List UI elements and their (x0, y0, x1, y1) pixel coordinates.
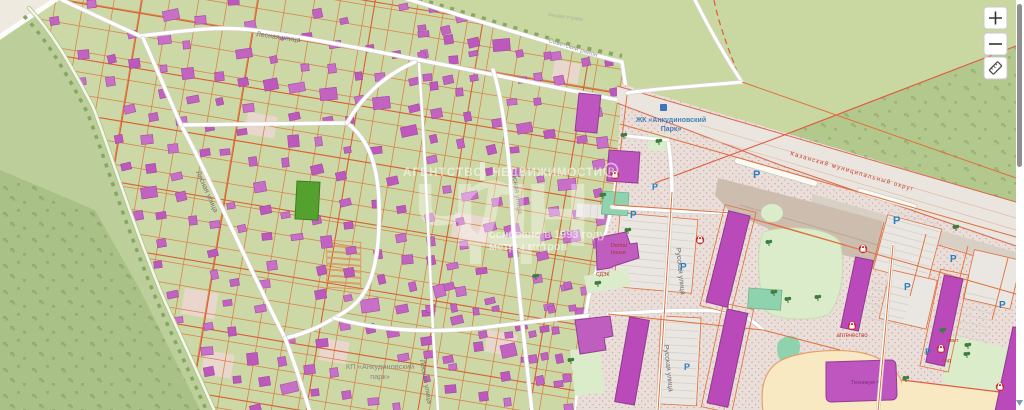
svg-text:Dental: Dental (611, 243, 627, 249)
svg-text:Техникум 44: Техникум 44 (851, 380, 882, 386)
svg-text:ЖК «Анкудиновский: ЖК «Анкудиновский (635, 116, 706, 124)
svg-text:КП «Анкудиновский: КП «Анкудиновский (346, 362, 414, 371)
svg-text:P: P (904, 282, 911, 293)
svg-text:основано в 1993 году: основано в 1993 году (489, 229, 607, 241)
svg-text:P: P (680, 262, 687, 273)
svg-text:Парк»: Парк» (661, 126, 682, 133)
svg-text:аптечество: аптечество (836, 333, 868, 339)
svg-text:P: P (652, 182, 658, 192)
svg-text:авит: авит (947, 338, 959, 344)
svg-text:P: P (950, 254, 957, 265)
svg-text:P: P (684, 362, 690, 372)
svg-text:P: P (753, 169, 760, 181)
svg-text:R: R (608, 166, 615, 176)
svg-text:СДЭК: СДЭК (596, 272, 609, 278)
svg-text:P: P (630, 210, 637, 221)
svg-text:метры метров: метры метров (489, 241, 568, 253)
svg-text:сад: сад (942, 358, 952, 364)
svg-text:парк»: парк» (370, 372, 390, 381)
svg-text:P: P (999, 300, 1006, 311)
svg-text:P: P (893, 215, 900, 227)
svg-text:P: P (925, 347, 931, 357)
svg-text:house: house (611, 250, 626, 256)
